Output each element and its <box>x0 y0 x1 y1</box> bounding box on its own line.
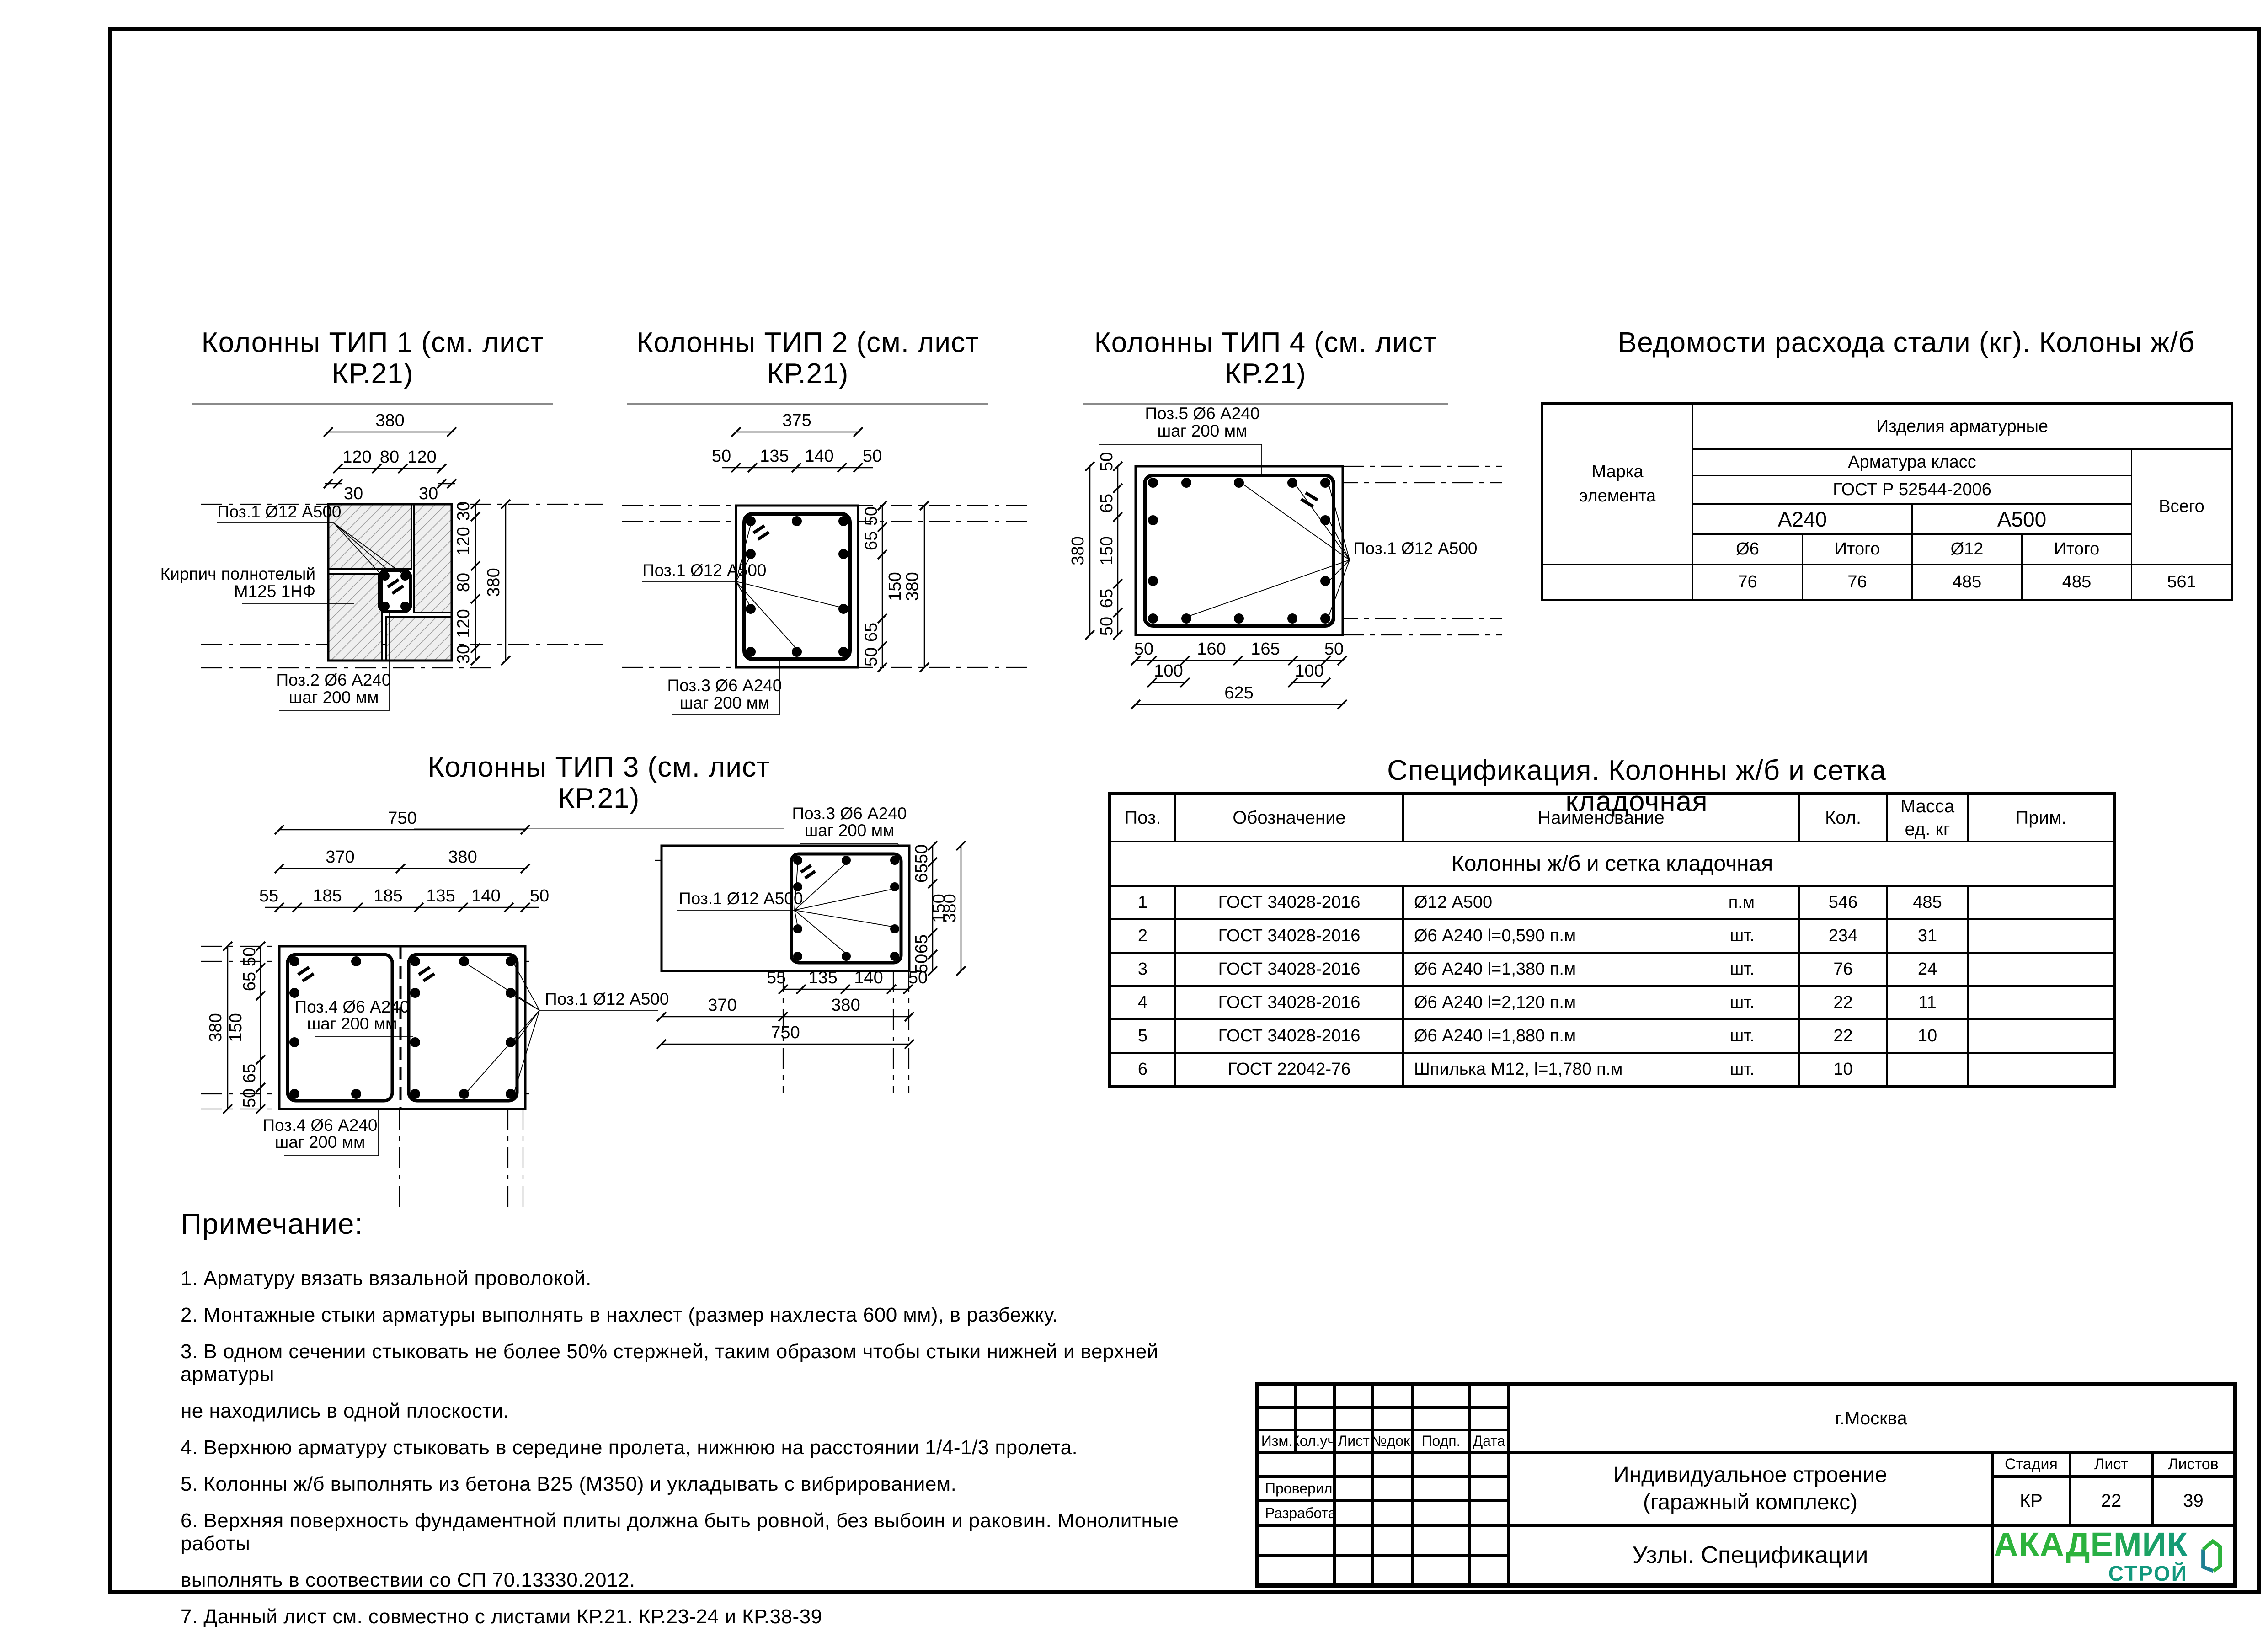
rebar-label: Поз.1 Ø12 А500 <box>1353 539 1477 558</box>
note-line: 1. Арматуру вязать вязальной проволокой. <box>181 1267 1246 1290</box>
dim: 135 <box>426 886 455 906</box>
dim: 50 <box>1097 452 1116 471</box>
dim: 120 <box>407 448 436 467</box>
tb-project-line2: (гаражный комплекс) <box>1643 1489 1857 1516</box>
tb-cell <box>1334 1555 1373 1585</box>
tb-cell <box>1334 1385 1373 1407</box>
tb-doc-name: Узлы. Спецификации <box>1508 1525 1992 1585</box>
tb-cell <box>1412 1501 1470 1525</box>
tb-header-izm: Изм. <box>1258 1430 1296 1452</box>
dim: 750 <box>388 809 416 828</box>
steel-vsego: Всего <box>2132 449 2232 565</box>
tb-cell <box>1334 1452 1373 1477</box>
notes-block: Примечание: 1. Арматуру вязать вязальной… <box>181 1207 1246 1642</box>
tb-cell <box>1334 1407 1373 1430</box>
title-block: Изм. Кол.уч. Лист №док. Подп. Дата Прове… <box>1255 1382 2237 1588</box>
tb-cell <box>1258 1407 1296 1430</box>
rebar-label: Поз.1 Ø12 А500 <box>642 561 766 580</box>
stirrup-label: шаг 200 мм <box>289 688 379 707</box>
tb-cell <box>1373 1385 1412 1407</box>
tb-cell <box>1412 1477 1470 1501</box>
tb-header-data: Дата <box>1470 1430 1508 1452</box>
dim: 80 <box>454 573 473 592</box>
dim: 50 <box>1097 617 1116 636</box>
dim: 160 <box>1197 640 1226 659</box>
drawing-sheet: { "titles": { "tip1": "Колонны ТИП 1 (см… <box>0 0 2268 1604</box>
dim: 120 <box>454 609 473 638</box>
tb-role-razrabotal: Разработал <box>1258 1501 1334 1525</box>
note-line: 6. Верхняя поверхность фундаментной плит… <box>181 1509 1246 1555</box>
steel-a240: А240 <box>1693 504 1912 534</box>
stirrup-label: Поз.2 Ø6 А240 <box>277 671 391 689</box>
tip3-right-section-drawing: Поз.3 Ø6 А240 шаг 200 мм Поз.1 Ø12 А500 … <box>654 805 1088 1125</box>
dim: 65 <box>912 864 931 883</box>
dim: 140 <box>471 886 500 906</box>
brick <box>386 617 452 661</box>
note-line: не находились в одной плоскости. <box>181 1400 1246 1423</box>
stirrup-label: шаг 200 мм <box>680 693 770 712</box>
spec-row: 3ГОСТ 34028-2016 Ø6 А240 l=1,380 п.мшт. … <box>1110 953 2115 986</box>
dim: 65 <box>1097 589 1116 608</box>
dim: 380 <box>375 411 404 430</box>
spec-header-row: Поз. Обозначение Наименование Кол. Масса… <box>1110 794 2115 842</box>
section-mark <box>388 580 403 593</box>
logo-text-stroy: СТРОЙ <box>2108 1561 2188 1585</box>
steel-d12: Ø12 <box>1912 534 2022 565</box>
dim: 150 <box>226 1013 245 1042</box>
tb-cell <box>1412 1407 1470 1430</box>
stirrup-label: шаг 200 мм <box>1158 421 1248 440</box>
dim: 55 <box>259 886 278 906</box>
dim: 370 <box>708 996 736 1015</box>
company-logo: АКАДЕМИК СТРОЙ <box>1992 1525 2234 1585</box>
spec-row: 6ГОСТ 22042-76 Шпилька М12, l=1,780 п.мш… <box>1110 1053 2115 1086</box>
dim: 185 <box>374 886 402 906</box>
steel-itogo: Итого <box>1803 534 1912 565</box>
tb-cell <box>1412 1452 1470 1477</box>
tb-header-list: Лист <box>1334 1430 1373 1452</box>
tb-role-proveril: Проверил <box>1258 1477 1334 1501</box>
tb-cell <box>1470 1555 1508 1585</box>
stirrup-label: Поз.4 Ø6 А240 <box>295 997 410 1016</box>
logo-text-akademik: АКАДЕМИК <box>1994 1525 2188 1564</box>
column-outline <box>662 846 909 971</box>
tb-list-header: Лист <box>2070 1452 2152 1477</box>
stirrup-label: Поз.3 Ø6 А240 <box>667 676 782 695</box>
tb-cell <box>1412 1555 1470 1585</box>
stirrup-label: шаг 200 мм <box>805 821 895 840</box>
steel-table-title: Ведомости расхода стали (кг). Колоны ж/б <box>1582 327 2231 372</box>
dim: 30 <box>454 645 473 664</box>
tb-cell <box>1373 1555 1412 1585</box>
tb-role-cell <box>1258 1525 1334 1555</box>
tb-role-cell <box>1258 1555 1334 1585</box>
steel-klass: Арматура класс <box>1693 449 2132 476</box>
rebar-label: Поз.1 Ø12 А500 <box>217 502 341 521</box>
dim: 50 <box>862 647 881 666</box>
tb-header-dok: №док. <box>1373 1430 1412 1452</box>
dim: 150 <box>886 572 905 601</box>
dim: 50 <box>908 968 928 987</box>
dim: 30 <box>454 501 473 521</box>
steel-col-marka: Марка элемента <box>1542 404 1693 565</box>
dim: 120 <box>454 527 473 555</box>
dim: 50 <box>712 447 731 466</box>
dim: 50 <box>1134 640 1153 659</box>
steel-izdeliya: Изделия арматурные <box>1693 404 2232 449</box>
brick-label: М125 1НФ <box>234 582 315 601</box>
dim: 50 <box>240 947 259 966</box>
dim: 135 <box>808 968 837 987</box>
rebar-label: Поз.1 Ø12 А500 <box>679 889 803 908</box>
tb-cell <box>1296 1407 1334 1430</box>
column-outline <box>1136 466 1343 635</box>
dim: 65 <box>862 623 881 642</box>
tb-city: г.Москва <box>1508 1385 2234 1452</box>
tb-listov-header: Листов <box>2152 1452 2234 1477</box>
dim: 100 <box>1154 661 1183 681</box>
tb-cell <box>1296 1385 1334 1407</box>
dim: 50 <box>240 1088 259 1108</box>
note-line: 7. Данный лист см. совместно с листами К… <box>181 1605 1246 1628</box>
steel-consumption-table: Марка элемента Изделия арматурные Армату… <box>1541 402 2233 601</box>
tb-stadia-header: Стадия <box>1992 1452 2070 1477</box>
tb-header-koluch: Кол.уч. <box>1296 1430 1334 1452</box>
dim: 150 <box>1097 536 1116 565</box>
tb-cell <box>1470 1501 1508 1525</box>
steel-values-row: 76 76 485 485 561 <box>1542 565 2232 600</box>
dim: 375 <box>782 411 811 430</box>
brick-label: Кирпич полнотелый <box>160 565 315 583</box>
dim: 65 <box>240 972 259 991</box>
tb-list-value: 22 <box>2070 1477 2152 1525</box>
tb-cell <box>1334 1525 1373 1555</box>
dim: 65 <box>862 531 881 550</box>
dim: 50 <box>530 886 549 906</box>
tb-cell <box>1470 1407 1508 1430</box>
notes-heading: Примечание: <box>181 1207 1246 1241</box>
spec-row: 4ГОСТ 34028-2016 Ø6 А240 l=2,120 п.мшт. … <box>1110 986 2115 1019</box>
tb-cell <box>1334 1501 1373 1525</box>
spec-row: 5ГОСТ 34028-2016 Ø6 А240 l=1,880 п.мшт. … <box>1110 1019 2115 1053</box>
tb-header-podp: Подп. <box>1412 1430 1470 1452</box>
dim: 65 <box>912 934 931 954</box>
dim: 65 <box>240 1064 259 1083</box>
tb-cell <box>1412 1385 1470 1407</box>
tip1-section-drawing: 380 120 80 120 30 30 30 120 80 120 30 38… <box>174 393 608 713</box>
dim: 65 <box>1097 494 1116 513</box>
steel-d6: Ø6 <box>1693 534 1803 565</box>
stirrup-label: шаг 200 мм <box>275 1133 365 1152</box>
note-line: 3. В одном сечении стыковать не более 50… <box>181 1340 1246 1386</box>
tb-stadia-value: КР <box>1992 1477 2070 1525</box>
rebar-label: Поз.1 Ø12 А500 <box>545 990 669 1008</box>
stirrup-label: Поз.3 Ø6 А240 <box>792 804 907 823</box>
dim: 140 <box>805 447 833 466</box>
note-line: выполнять в соотвествии со СП 70.13330.2… <box>181 1569 1246 1592</box>
dim: 165 <box>1251 640 1280 659</box>
tb-cell <box>1470 1477 1508 1501</box>
dim: 380 <box>1068 536 1088 565</box>
tb-role-cell <box>1258 1452 1334 1477</box>
logo-house-icon <box>2197 1527 2223 1583</box>
stirrup-label: Поз.4 Ø6 А240 <box>263 1116 378 1135</box>
dim: 625 <box>1224 683 1253 703</box>
spec-group-row: Колонны ж/б и сетка кладочная <box>1110 842 2115 886</box>
specification-table: Поз. Обозначение Наименование Кол. Масса… <box>1108 792 2116 1088</box>
dim: 120 <box>342 448 371 467</box>
tb-cell <box>1373 1407 1412 1430</box>
tb-cell <box>1373 1477 1412 1501</box>
dim: 380 <box>903 572 922 601</box>
dim: 50 <box>862 506 881 526</box>
steel-itogo: Итого <box>2022 534 2132 565</box>
dim: 750 <box>771 1023 800 1042</box>
tb-cell <box>1470 1525 1508 1555</box>
tb-listov-value: 39 <box>2152 1477 2234 1525</box>
dim: 140 <box>854 968 883 987</box>
dim: 55 <box>767 968 786 987</box>
note-line: 2. Монтажные стыки арматуры выполнять в … <box>181 1304 1246 1327</box>
note-line: 5. Колонны ж/б выполнять из бетона В25 (… <box>181 1473 1246 1496</box>
dim: 50 <box>1324 640 1344 659</box>
tip3-left-section-drawing: 750 370 380 55 185 185 135 140 50 50 65 … <box>174 805 677 1216</box>
dim: 370 <box>326 848 354 867</box>
dim: 80 <box>380 448 399 467</box>
dim: 50 <box>912 844 931 864</box>
dim: 135 <box>760 447 789 466</box>
dim: 380 <box>940 894 960 922</box>
brick <box>328 574 382 661</box>
tb-project-line1: Индивидуальное строение <box>1613 1461 1887 1489</box>
dim: 100 <box>1295 661 1323 681</box>
spec-row: 1ГОСТ 34028-2016 Ø12 А500п.м 546485 <box>1110 886 2115 919</box>
tb-cell <box>1412 1525 1470 1555</box>
dim: 30 <box>344 484 363 503</box>
column-outline <box>736 506 858 667</box>
dim: 380 <box>484 568 503 597</box>
tb-cell <box>1373 1501 1412 1525</box>
tb-cell <box>1258 1385 1296 1407</box>
tb-cell <box>1470 1452 1508 1477</box>
stirrup-label: шаг 200 мм <box>307 1014 397 1033</box>
tb-cell <box>1373 1525 1412 1555</box>
tb-cell <box>1334 1477 1373 1501</box>
tb-cell <box>1373 1452 1412 1477</box>
tip2-section-drawing: 375 50 135 140 50 50 65 150 65 50 380 По… <box>608 393 1042 713</box>
brick <box>414 504 452 613</box>
spec-row: 2ГОСТ 34028-2016 Ø6 А240 l=0,590 п.мшт. … <box>1110 919 2115 953</box>
tb-project-name: Индивидуальное строение (гаражный компле… <box>1508 1452 1992 1525</box>
dim: 380 <box>831 996 860 1015</box>
note-line: 4. Верхнюю арматуру стыковать в середине… <box>181 1436 1246 1459</box>
steel-a500: А500 <box>1912 504 2132 534</box>
dim: 380 <box>448 848 477 867</box>
steel-gost: ГОСТ Р 52544-2006 <box>1693 476 2132 504</box>
tb-cell <box>1470 1385 1508 1407</box>
dim: 185 <box>313 886 342 906</box>
dim: 380 <box>206 1013 225 1042</box>
stirrup-label: Поз.5 Ø6 А240 <box>1145 404 1260 423</box>
dim: 30 <box>419 484 438 503</box>
dim: 50 <box>863 447 882 466</box>
tip4-section-drawing: Поз.5 Ø6 А240 шаг 200 мм Поз.1 Ø12 А500 … <box>1051 393 1509 741</box>
